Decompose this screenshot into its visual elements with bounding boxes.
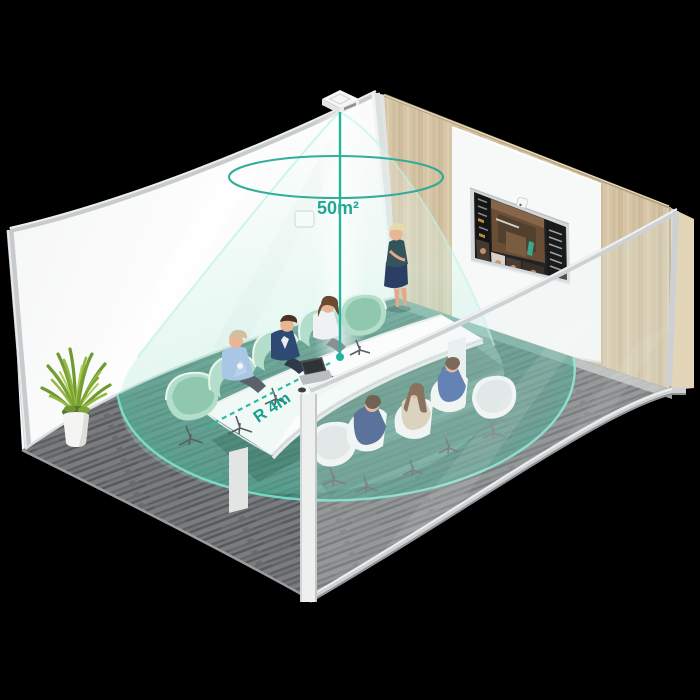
svg-text:50m²: 50m² xyxy=(317,198,359,218)
